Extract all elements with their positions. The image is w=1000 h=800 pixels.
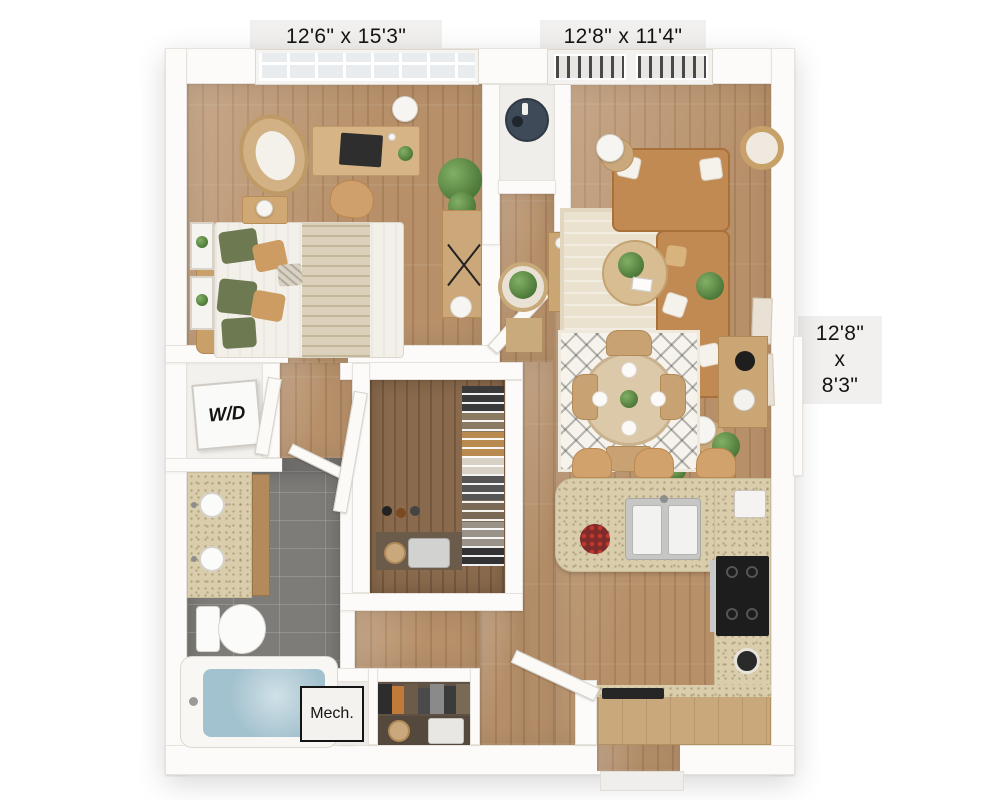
floor-plant xyxy=(696,272,724,300)
burner xyxy=(726,566,738,578)
coat-item xyxy=(404,684,418,714)
toilet-bowl xyxy=(218,604,266,654)
front-doorway xyxy=(597,745,680,771)
page: { "labels": { "bedroom_dims": "12'6\" x … xyxy=(0,0,1000,800)
nook-dims-line3: 8'3" xyxy=(822,373,858,399)
dimension-label-nook: 12'8" x 8'3" xyxy=(798,316,882,404)
fruit-bowl xyxy=(580,524,610,554)
bedroom-window xyxy=(256,50,478,84)
wall-niche-bottom xyxy=(498,180,556,194)
throw-blanket xyxy=(302,223,370,357)
faucet xyxy=(660,495,668,503)
coat-item xyxy=(430,684,444,714)
shoe xyxy=(396,508,406,518)
coat-item xyxy=(378,684,392,714)
nook-dims-line2: x xyxy=(835,347,846,373)
art-plant-print xyxy=(196,294,208,306)
place-setting xyxy=(621,362,637,378)
wall-bedroom-right xyxy=(482,84,500,245)
microwave xyxy=(734,490,766,518)
storage-basket xyxy=(384,542,406,564)
kitchen-sink xyxy=(625,498,701,560)
wire-shelf-overlay xyxy=(462,386,504,566)
wall-mech-right xyxy=(368,668,378,745)
bar-stool xyxy=(696,448,736,478)
faucet xyxy=(191,556,197,562)
storage-case xyxy=(408,538,450,568)
coat-item xyxy=(444,686,456,714)
sink-basin xyxy=(632,505,662,555)
place-setting xyxy=(650,391,666,407)
desk-plant xyxy=(398,146,413,161)
bathroom-sink xyxy=(199,546,225,572)
wall-entry-closet-right xyxy=(470,668,480,745)
grill-tray xyxy=(602,688,664,699)
hall-stool xyxy=(506,318,542,352)
burner xyxy=(746,608,758,620)
entry-floor xyxy=(480,611,523,745)
table-lamp xyxy=(596,134,624,162)
wall-art xyxy=(190,222,214,270)
art-plant-print xyxy=(196,236,208,248)
dining-chair xyxy=(606,330,652,356)
vanity-counter xyxy=(187,472,252,598)
pillow-tan xyxy=(250,289,286,322)
sofa-pillow xyxy=(699,157,724,182)
coffee-table-plant xyxy=(618,252,644,278)
bedroom-dims-text: 12'6" x 15'3" xyxy=(286,24,406,50)
wall-closet-right xyxy=(505,380,523,611)
living-dims-text: 12'8" x 11'4" xyxy=(564,24,683,50)
closet-rack xyxy=(462,386,504,566)
range xyxy=(716,556,769,636)
laptop xyxy=(339,133,383,168)
mech-closet-box: Mech. xyxy=(300,686,364,742)
x-decor xyxy=(451,239,475,291)
centerpiece xyxy=(620,390,638,408)
decorative-bowl xyxy=(733,389,755,411)
pillow-accent xyxy=(277,263,303,287)
oven-handle xyxy=(710,560,715,632)
nightstand-lamp xyxy=(256,200,273,217)
storage-bin xyxy=(428,718,464,744)
console-lamp xyxy=(735,351,755,371)
bottle xyxy=(522,103,528,115)
shoe xyxy=(410,506,420,516)
toilet-tank xyxy=(196,606,220,652)
balcony-door-panel xyxy=(636,54,708,80)
chair-cushion xyxy=(249,126,301,185)
dining-console xyxy=(718,336,768,428)
balcony-door xyxy=(548,50,712,84)
wall-bottom xyxy=(165,745,795,775)
place-setting xyxy=(592,391,608,407)
faucet xyxy=(191,502,197,508)
storage-basket xyxy=(388,720,410,742)
tub-faucet xyxy=(189,697,198,706)
coat-item xyxy=(392,686,404,714)
entry-stoop xyxy=(600,771,684,791)
sink-basin xyxy=(668,505,698,555)
decorative-plate xyxy=(734,648,760,674)
bathroom-sink xyxy=(199,492,225,518)
mech-label: Mech. xyxy=(310,705,354,723)
console-chair xyxy=(450,296,472,318)
hall-lower-floor xyxy=(523,362,554,745)
coffee-table-book xyxy=(631,277,653,293)
washer-dryer-label: W/D xyxy=(208,402,247,427)
floor-lamp xyxy=(392,96,418,122)
burner xyxy=(726,608,738,620)
washer-dryer-unit: W/D xyxy=(191,379,263,451)
planter-plant xyxy=(509,271,537,299)
vanity-cabinet xyxy=(252,474,270,596)
wall-right-bump xyxy=(793,336,803,476)
wall-mirror xyxy=(740,126,784,170)
kettle xyxy=(512,116,523,127)
sofa-pillow-tan xyxy=(665,245,688,268)
hall-planter xyxy=(498,262,548,312)
shoe xyxy=(382,506,392,516)
coat-item xyxy=(418,688,430,714)
entry-hall-floor xyxy=(355,611,480,668)
coat-item xyxy=(456,684,470,714)
wall-art xyxy=(190,276,214,330)
bar-stool xyxy=(634,448,674,478)
place-setting xyxy=(621,420,637,436)
nook-dims-line1: 12'8" xyxy=(816,321,865,347)
wall-closet-bottom xyxy=(340,593,523,611)
burner xyxy=(746,566,758,578)
desk-cup xyxy=(388,133,396,141)
balcony-door-panel xyxy=(554,54,626,80)
bar-stool xyxy=(572,448,612,478)
pillow-green xyxy=(221,317,257,349)
entry-closet-rod xyxy=(378,682,470,716)
